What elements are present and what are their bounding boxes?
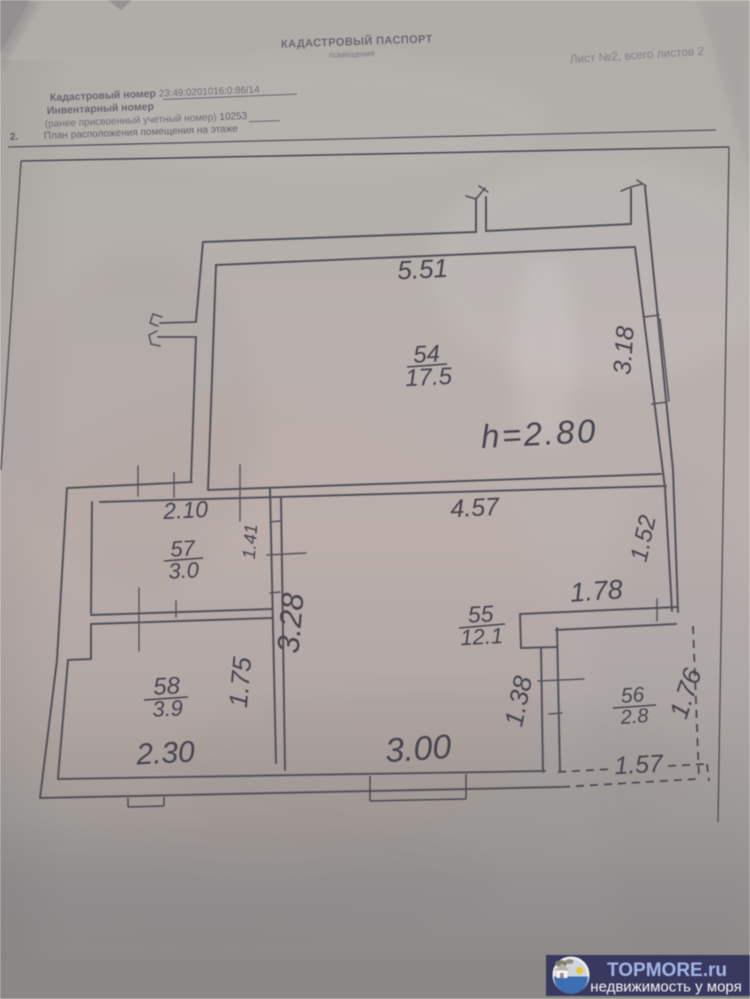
svg-text:недвижимость у моря: недвижимость у моря [590, 979, 741, 996]
svg-text:3.18: 3.18 [608, 325, 639, 376]
svg-text:2.: 2. [10, 132, 19, 143]
svg-text:5.51: 5.51 [397, 253, 449, 286]
svg-text:2.30: 2.30 [134, 735, 195, 771]
svg-text:3.9: 3.9 [152, 695, 184, 722]
svg-text:3.00: 3.00 [384, 728, 453, 771]
svg-text:12.1: 12.1 [460, 623, 504, 650]
svg-text:1.75: 1.75 [223, 655, 257, 709]
svg-text:3.28: 3.28 [270, 591, 310, 655]
svg-text:1.78: 1.78 [569, 574, 624, 608]
svg-text:2.8: 2.8 [619, 705, 649, 729]
svg-text:17.5: 17.5 [405, 363, 454, 392]
svg-text:1.41: 1.41 [239, 523, 261, 559]
svg-text:2.10: 2.10 [162, 496, 209, 524]
svg-text:1.57: 1.57 [614, 750, 665, 781]
svg-text:3.0: 3.0 [168, 557, 201, 584]
svg-text:помещения: помещения [329, 48, 375, 60]
svg-text:h=2.80: h=2.80 [480, 412, 599, 455]
svg-text:56: 56 [620, 683, 645, 708]
svg-text:4.57: 4.57 [450, 493, 501, 524]
